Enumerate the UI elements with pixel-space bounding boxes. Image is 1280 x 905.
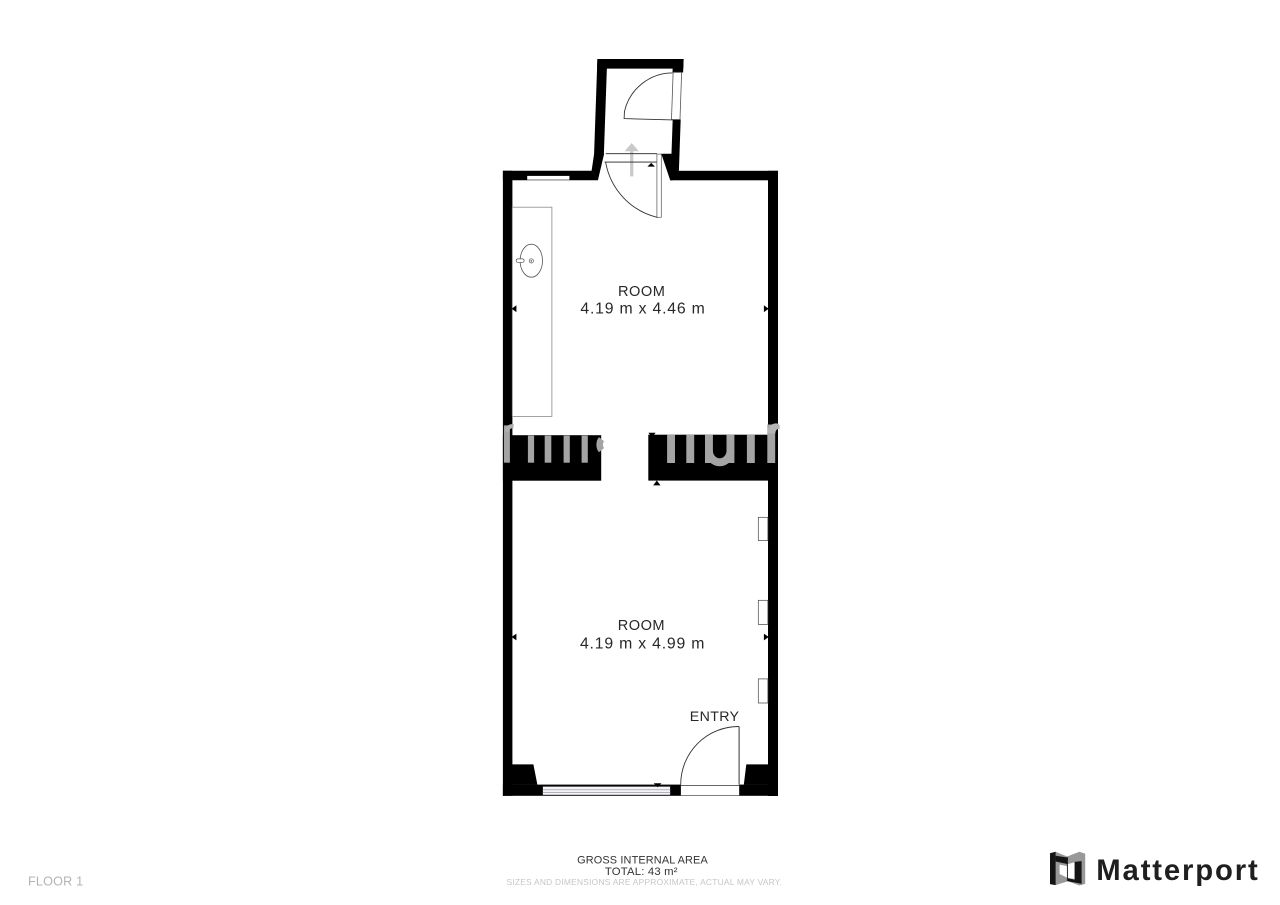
- svg-text:ENTRY: ENTRY: [690, 709, 740, 725]
- svg-text:4.19 m x 4.99 m: 4.19 m x 4.99 m: [580, 635, 705, 652]
- svg-text:SIZES AND DIMENSIONS ARE APPRO: SIZES AND DIMENSIONS ARE APPROXIMATE, AC…: [506, 877, 782, 887]
- svg-text:ROOM: ROOM: [618, 284, 665, 300]
- svg-text:FLOOR 1: FLOOR 1: [28, 874, 83, 888]
- svg-text:4.19 m x 4.46 m: 4.19 m x 4.46 m: [580, 301, 705, 318]
- svg-text:ROOM: ROOM: [618, 618, 665, 634]
- svg-text:Matterport: Matterport: [1096, 854, 1259, 887]
- svg-text:GROSS INTERNAL AREA: GROSS INTERNAL AREA: [577, 854, 708, 866]
